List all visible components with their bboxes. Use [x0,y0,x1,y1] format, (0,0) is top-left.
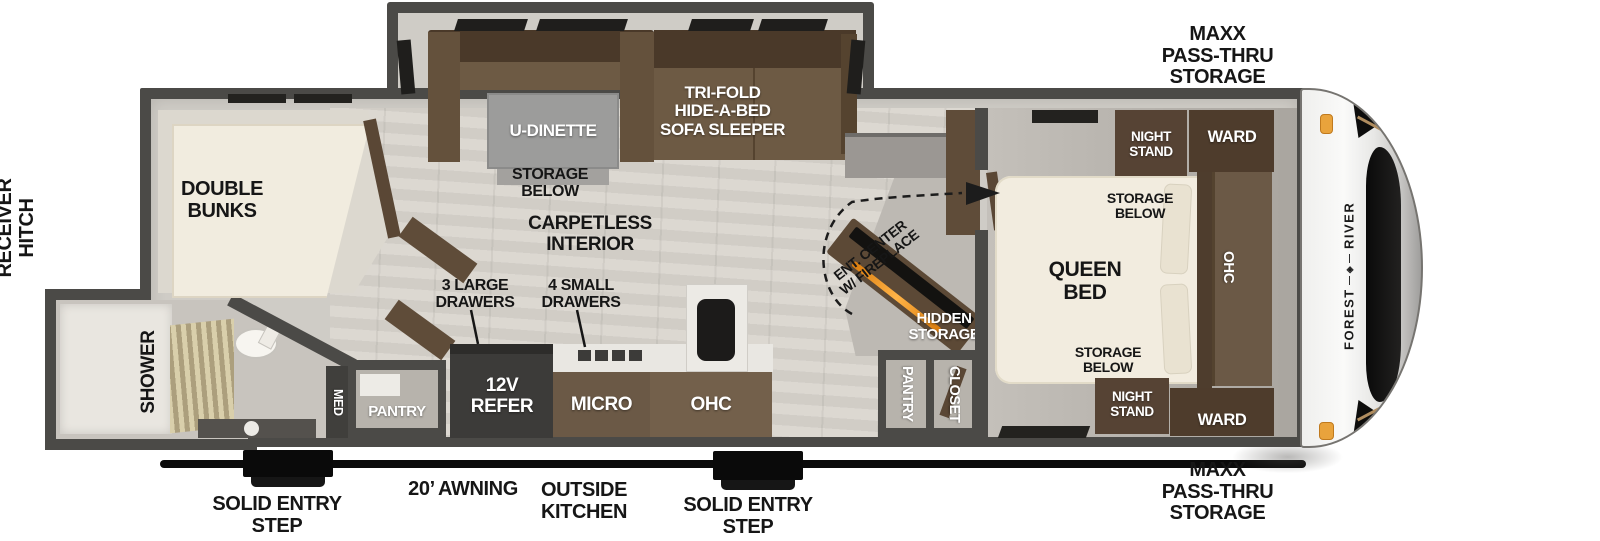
bedroom-wall-lower [975,230,988,437]
slide-window [688,19,754,31]
queen-bed-label: QUEEN BED [1015,259,1155,304]
refer-label: 12V REFER [452,376,552,417]
pantry-mid-label: PANTRY [887,362,925,426]
shower-label: SHOWER [139,307,163,437]
entry-step-right-lip [721,480,795,490]
small-drawers-label: 4 SMALL DRAWERS [526,277,636,312]
carpetless-label: CARPETLESS INTERIOR [510,214,670,255]
entry-step-right [713,451,803,480]
night-stand-top-label: NIGHT STAND [1116,130,1186,159]
double-bunks-label: DOUBLE BUNKS [147,179,297,222]
outside-kitchen-label: OUTSIDE KITCHEN [514,480,654,523]
refrigerator-top [450,344,553,354]
shower-door [170,319,234,434]
receiver-hitch-label: RECEIVER HITCH [0,128,47,328]
dinette-storage-label: STORAGE BELOW [490,166,610,201]
brand-word-forest: FOREST [1342,288,1357,350]
front-cap: FOREST —◈— RIVER [1300,88,1423,448]
sofa-label: TRI-FOLD HIDE-A-BED SOFA SLEEPER [640,84,805,139]
sofa-back [654,30,856,68]
slide-window [758,19,828,31]
bedroom-ohc-label: OHC [1216,237,1240,297]
maxx-storage-bottom-label: MAXX PASS-THRU STORAGE [1130,460,1305,525]
bedroom-vent [1032,110,1098,123]
med-label: MED [327,370,347,434]
marker-light-bottom [1319,422,1334,440]
bath-sink [244,421,259,436]
dinette-arm-left [428,32,460,162]
pantry-shelf [360,374,400,396]
brand-word-river: RIVER [1342,202,1357,249]
marker-light-top [1320,114,1333,134]
micro-label: MICRO [553,395,650,416]
kitchen-drawer [629,350,642,361]
storage-below-top-label: STORAGE BELOW [1080,191,1200,221]
windshield-decal [1366,147,1401,402]
slide-window [536,19,628,31]
bunk-window-mark [294,94,352,103]
kitchen-sink [697,299,735,361]
entry-step-left-label: SOLID ENTRY STEP [197,494,357,537]
kitchen-drawer [595,350,608,361]
storage-below-bottom-label: STORAGE BELOW [1048,345,1168,375]
maxx-storage-top-label: MAXX PASS-THRU STORAGE [1130,24,1305,89]
bunk-window-mark [228,94,286,103]
large-drawers-label: 3 LARGE DRAWERS [420,277,530,312]
corner-counter [845,133,950,178]
bedroom-window [998,426,1090,438]
brand-text: FOREST —◈— RIVER [1336,150,1362,402]
entry-step-left [243,450,333,477]
kitchen-drawer [578,350,591,361]
closet-label: CLOSET [935,362,971,426]
entry-step-right-label: SOLID ENTRY STEP [668,495,828,538]
pantry-lower-label: PANTRY [350,404,444,420]
forest-river-logo-icon: —◈— [1344,250,1354,289]
kitchen-ohc-label: OHC [650,395,772,416]
ward-bottom-label: WARD [1182,412,1262,430]
u-dinette-label: U-DINETTE [487,122,619,140]
kitchen-drawer [612,350,625,361]
ward-top-label: WARD [1192,129,1272,147]
night-stand-bottom-label: NIGHT STAND [1097,390,1167,419]
bedroom-wall-upper [975,108,988,170]
entry-step-left-lip [251,477,325,487]
rv-floorplan: MED SHOWER PANTRY DOUBLE BUNKS U-DINETTE… [0,0,1600,541]
slide-window [454,19,528,31]
